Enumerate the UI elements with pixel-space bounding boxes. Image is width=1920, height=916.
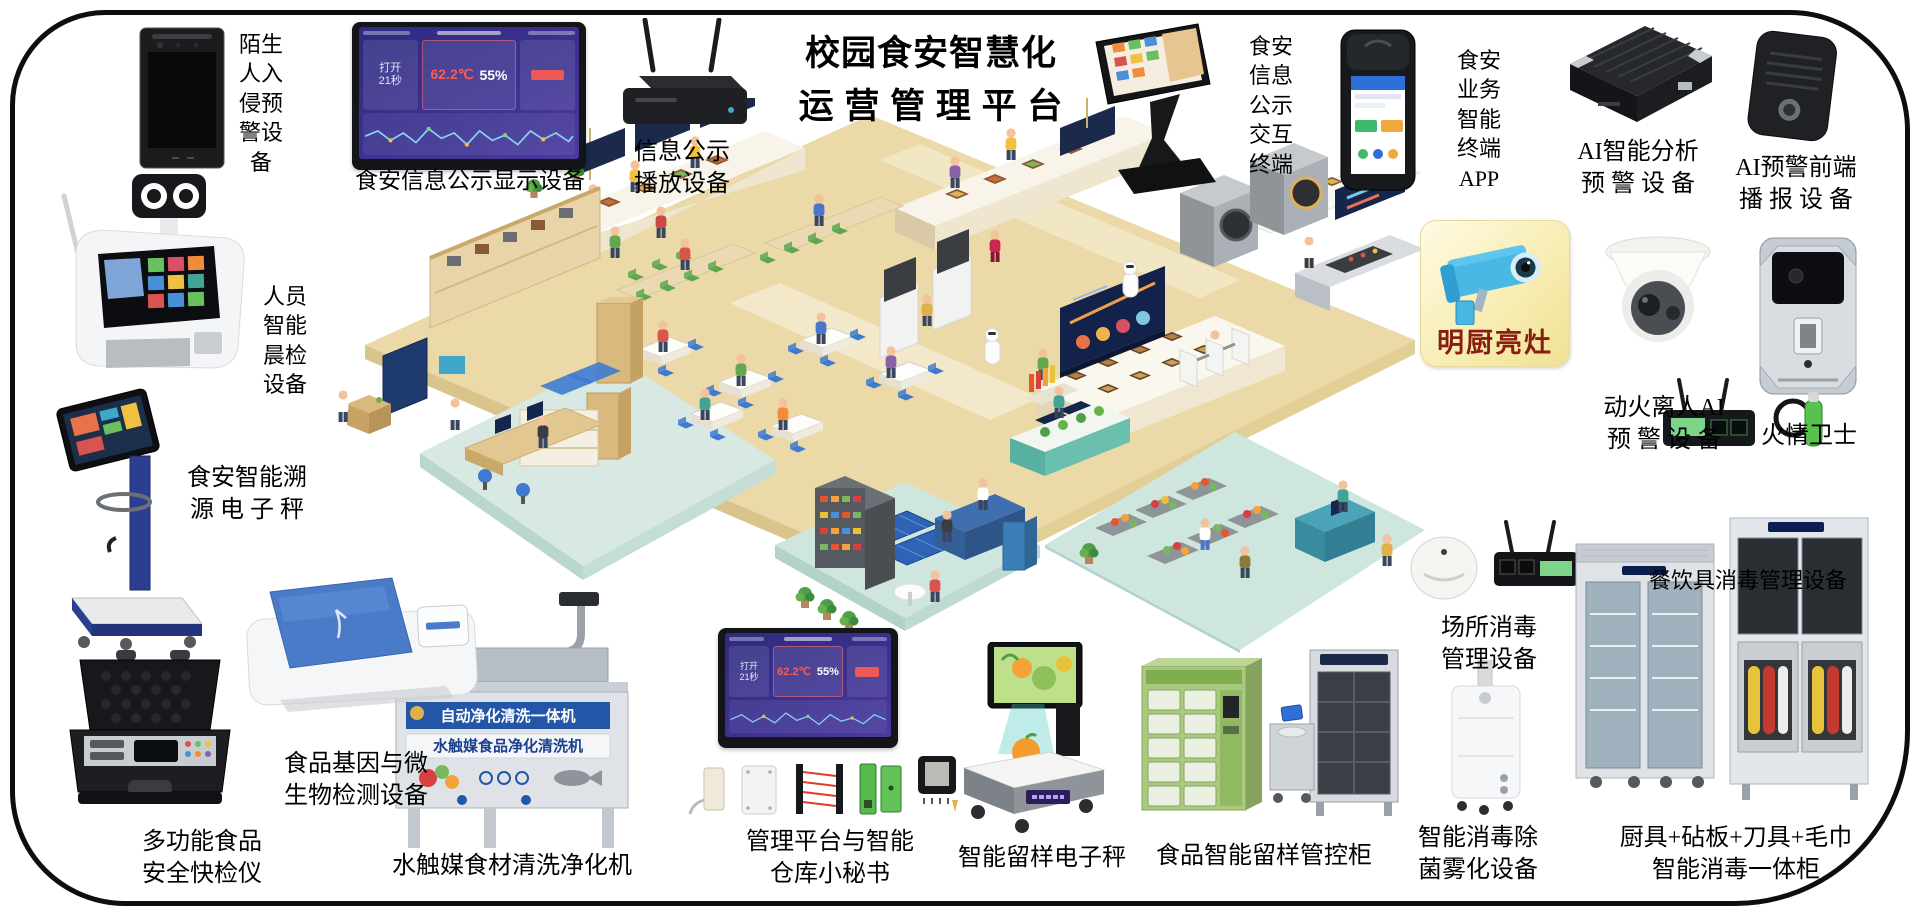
dashboard-alert-card [520,40,575,110]
device-warehouse-sensors [684,756,969,822]
device-morning-check [44,168,252,400]
device-fogger [1438,660,1534,820]
label-tableware-disinfect: 餐饮具消毒管理设备 [1622,566,1874,595]
sample-scale-icon [952,642,1114,838]
label-trace-scale: 食安智能溯 源 电 子 秤 [168,462,326,526]
morning-check-robot-icon [44,168,252,400]
washer-banner-2: 水触媒食品净化清洗机 [433,737,583,755]
label-app-terminal: 食安 业务 智能 终端 APP [1450,46,1508,193]
label-mingchu: 明厨亮灶 [1437,321,1553,360]
label-sample-scale: 智能留样电子秤 [948,842,1136,874]
dashboard-header [363,31,575,37]
ai-analysis-box-icon [1550,16,1722,134]
page-title: 校园食安智慧化 运 营 管 理 平 台 [775,28,1087,133]
device-info-display: 打开 21秒 62.2℃ 55% [352,22,586,170]
device-handheld-terminal [1325,24,1431,196]
label-sample-cabinet: 食品智能留样管控柜 [1142,840,1386,872]
device-sample-scale [952,642,1114,838]
temperature-value: 62.2℃ [430,66,473,83]
label-info-player: 信息公示 播放设备 [608,136,756,200]
label-mgmt-platform: 管理平台与智能 仓库小秘书 [726,826,934,890]
dashboard-trend-chart [363,113,575,155]
device-combo-cabinets [1572,510,1874,812]
door-duration: 21秒 [379,75,402,88]
mgmt-trend-chart [729,700,887,733]
label-combo-cabinet: 厨具+砧板+刀具+毛巾 智能消毒一体柜 [1590,822,1882,886]
label-fire-ai: 动火离人AI 预 警 设 备 [1588,392,1740,456]
mgmt-door-card: 打开 21秒 [729,646,769,697]
label-morning-check: 人员 智能 晨检 设备 [256,282,314,400]
humidity-value: 55% [479,67,507,83]
disinfect-cabinets-icon [1572,510,1874,812]
label-fire-guard: 火情卫士 [1748,420,1870,452]
dashboard-door-card: 打开 21秒 [363,40,418,110]
device-place-disinfect [1406,516,1586,616]
label-fogger: 智能消毒除 菌雾化设备 [1402,822,1554,886]
handheld-terminal-icon [1325,24,1431,196]
device-ai-analysis [1550,16,1722,134]
mgmt-env-card: 62.2℃ 55% [773,646,843,697]
media-player-device-icon [615,18,755,134]
device-fire-ai-camera [1588,226,1728,350]
steel-sample-cabinet-icon [1268,646,1404,826]
disinfect-sensor-and-router-icon [1406,516,1586,616]
device-ai-speaker [1738,26,1846,150]
label-rapid-tester: 多功能食品 安全快检仪 [112,826,292,890]
poster-canvas: 校园食安智慧化 运 营 管 理 平 台 陌生 人入 侵预 警设 备 打开 21秒… [0,0,1920,916]
device-mgmt-monitor: 打开 21秒 62.2℃ 55% [718,628,898,748]
mingchu-liangzao-badge: 明厨亮灶 [1420,220,1570,367]
speaker-device-icon [1738,26,1846,150]
face-recognition-device-icon [138,26,228,172]
device-interactive-kiosk [1088,22,1224,196]
warehouse-sensors-icon [684,756,969,822]
fogging-machine-icon [1438,660,1534,820]
green-sample-locker-icon [1138,656,1270,824]
device-gene-detector [240,570,488,720]
label-info-display: 食安信息公示显示设备 [330,166,610,197]
label-ai-analysis: AI智能分析 预 警 设 备 [1552,136,1724,200]
label-place-disinfect: 场所消毒 管理设备 [1425,612,1553,676]
dashboard-screen: 打开 21秒 62.2℃ 55% [359,27,579,159]
dome-camera-icon [1588,226,1728,350]
label-face-intrusion: 陌生 人入 侵预 警设 备 [232,30,290,177]
kiosk-device-icon [1088,22,1224,196]
door-state: 打开 [379,62,401,75]
device-rapid-tester [58,632,242,824]
mgmt-alert-card [847,646,887,697]
device-face-recognition [138,26,228,172]
device-sample-steel-cabinet [1268,646,1404,826]
device-info-player [615,18,755,134]
label-washer: 水触媒食材清洗净化机 [348,850,676,882]
rapid-test-case-icon [58,632,242,824]
mgmt-dashboard-screen: 打开 21秒 62.2℃ 55% [725,633,891,737]
label-gene-detector: 食品基因与微 生物检测设备 [268,748,444,812]
cctv-camera-icon [1420,221,1570,325]
dashboard-env-card: 62.2℃ 55% [422,40,517,110]
device-sample-locker [1138,656,1270,824]
label-ai-broadcast: AI预警前端 播 报 设 备 [1722,152,1870,216]
gene-detector-icon [240,570,488,720]
label-interactive-terminal: 食安 信息 公示 交互 终端 [1242,32,1300,179]
